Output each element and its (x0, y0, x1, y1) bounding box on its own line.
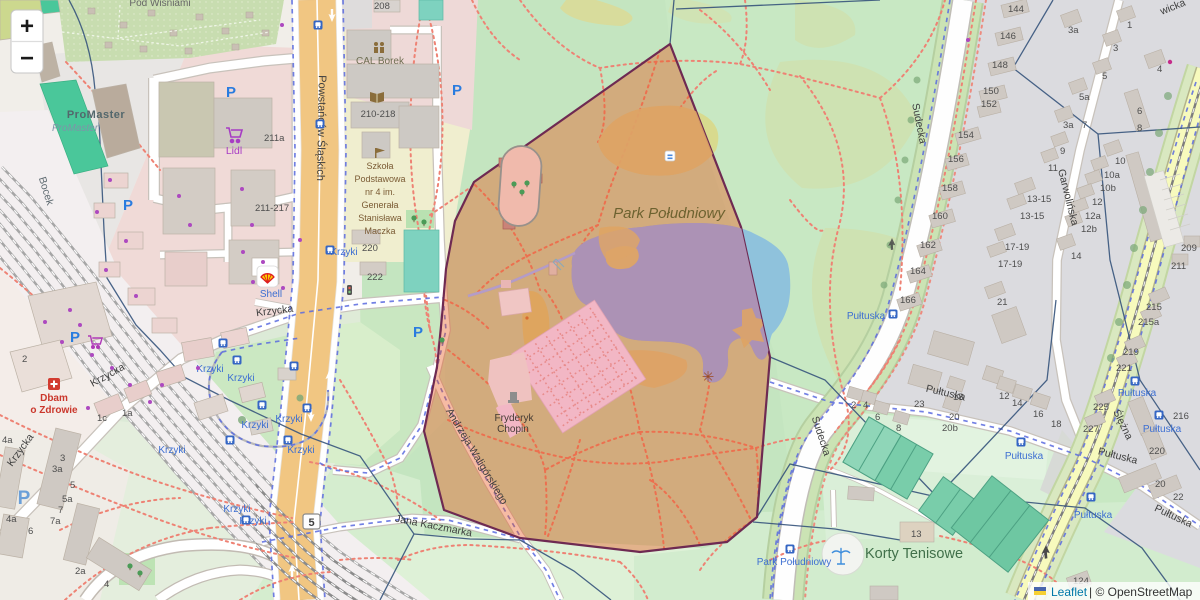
svg-text:Stanisława: Stanisława (358, 213, 402, 223)
svg-text:3: 3 (1113, 43, 1118, 54)
svg-text:Shell: Shell (260, 289, 282, 300)
svg-text:Pod Wiśniami: Pod Wiśniami (129, 0, 190, 9)
svg-text:10a: 10a (1104, 170, 1121, 181)
svg-text:225: 225 (1093, 402, 1109, 413)
svg-text:Pułtuska: Pułtuska (1074, 510, 1113, 521)
svg-text:2a: 2a (75, 566, 86, 577)
svg-text:5a: 5a (62, 494, 73, 505)
svg-text:215a: 215a (1138, 317, 1160, 328)
svg-text:7: 7 (58, 505, 63, 516)
svg-text:10: 10 (1115, 156, 1126, 167)
svg-text:Szkoła: Szkoła (366, 161, 393, 171)
svg-text:Krzyki: Krzyki (241, 420, 268, 431)
svg-text:158: 158 (942, 183, 958, 194)
svg-text:6: 6 (875, 412, 880, 423)
svg-text:162: 162 (920, 240, 936, 251)
svg-text:6: 6 (28, 526, 33, 537)
svg-text:Krzyki: Krzyki (158, 445, 185, 456)
svg-text:Pułtuska: Pułtuska (1005, 451, 1044, 462)
svg-text:208: 208 (374, 1, 390, 12)
svg-text:CAL Borek: CAL Borek (356, 56, 405, 67)
svg-text:3: 3 (60, 453, 65, 464)
svg-text:1c: 1c (97, 413, 107, 424)
svg-text:3a: 3a (52, 464, 63, 475)
svg-text:221: 221 (1116, 363, 1132, 374)
svg-text:14: 14 (1012, 398, 1023, 409)
svg-text:156: 156 (948, 154, 964, 165)
svg-text:222: 222 (367, 272, 383, 283)
svg-text:13-15: 13-15 (1027, 194, 1051, 205)
svg-text:13-15: 13-15 (1020, 211, 1044, 222)
svg-text:3a: 3a (1063, 120, 1074, 131)
svg-text:17-19: 17-19 (1005, 242, 1029, 253)
svg-text:Maczka: Maczka (364, 226, 395, 236)
svg-text:21: 21 (997, 297, 1008, 308)
svg-text:20: 20 (1155, 479, 1166, 490)
svg-text:150: 150 (983, 86, 999, 97)
svg-text:Dbam: Dbam (40, 393, 68, 404)
svg-text:Krzyki: Krzyki (287, 445, 314, 456)
svg-text:4: 4 (104, 579, 109, 590)
svg-text:20b: 20b (942, 423, 958, 434)
svg-text:18: 18 (1051, 419, 1062, 430)
svg-text:215: 215 (1146, 302, 1162, 313)
svg-text:Krzyki: Krzyki (275, 414, 302, 425)
svg-text:211: 211 (1171, 261, 1186, 272)
svg-text:Pułtuska: Pułtuska (847, 311, 886, 322)
svg-text:Leaflet: Leaflet (1051, 585, 1088, 599)
svg-text:12: 12 (999, 391, 1010, 402)
svg-text:23: 23 (914, 399, 925, 410)
svg-text:| © OpenStreetMap: | © OpenStreetMap (1089, 585, 1193, 599)
svg-text:7a: 7a (50, 516, 61, 527)
svg-text:Chopin: Chopin (497, 424, 529, 435)
svg-text:20: 20 (949, 412, 960, 423)
svg-text:5a: 5a (1079, 92, 1090, 103)
svg-text:146: 146 (1000, 31, 1016, 42)
svg-text:Pułtuska: Pułtuska (1118, 388, 1157, 399)
svg-text:P: P (18, 488, 31, 509)
svg-text:160: 160 (932, 211, 948, 222)
svg-text:1: 1 (1127, 20, 1132, 31)
svg-text:12a: 12a (1085, 211, 1102, 222)
svg-text:152: 152 (981, 99, 997, 110)
svg-text:Krzyki: Krzyki (227, 373, 254, 384)
svg-text:4: 4 (863, 400, 868, 411)
svg-text:2: 2 (22, 354, 27, 365)
svg-text:4a: 4a (6, 514, 17, 525)
svg-text:4: 4 (1157, 64, 1162, 75)
svg-text:+: + (20, 13, 34, 40)
svg-text:3a: 3a (1068, 25, 1079, 36)
svg-text:9: 9 (1060, 146, 1065, 157)
svg-text:✳: ✳ (702, 369, 715, 386)
svg-text:22: 22 (1173, 492, 1184, 503)
svg-text:8: 8 (896, 423, 901, 434)
svg-text:Podstawowa: Podstawowa (354, 174, 405, 184)
svg-text:Park Południowy: Park Południowy (757, 557, 831, 568)
svg-text:4a: 4a (2, 435, 13, 446)
svg-text:Lidl: Lidl (226, 145, 242, 157)
svg-text:Krzyki: Krzyki (223, 504, 250, 515)
svg-text:6: 6 (1137, 106, 1142, 117)
svg-text:Korty Tenisowe: Korty Tenisowe (865, 546, 963, 562)
svg-text:nr 4 im.: nr 4 im. (365, 187, 395, 197)
svg-text:209: 209 (1181, 243, 1197, 254)
svg-text:5: 5 (70, 480, 75, 491)
svg-text:8: 8 (1137, 123, 1142, 134)
svg-text:216: 216 (1173, 411, 1189, 422)
svg-text:211-217: 211-217 (255, 203, 289, 214)
svg-text:1a: 1a (122, 408, 133, 419)
svg-text:7: 7 (1082, 120, 1087, 131)
svg-text:Park Południowy: Park Południowy (613, 205, 726, 222)
svg-text:12b: 12b (1081, 224, 1097, 235)
svg-text:16: 16 (1033, 409, 1044, 420)
svg-text:12: 12 (1092, 197, 1103, 208)
svg-text:210-218: 210-218 (361, 109, 396, 120)
svg-text:Krzyki: Krzyki (196, 364, 223, 375)
svg-text:166: 166 (900, 295, 916, 306)
svg-text:−: − (20, 45, 34, 72)
svg-text:Fryderyk: Fryderyk (495, 413, 535, 424)
svg-text:14: 14 (1071, 251, 1082, 262)
svg-text:2: 2 (851, 400, 856, 411)
svg-text:10b: 10b (1100, 183, 1116, 194)
svg-text:148: 148 (992, 60, 1008, 71)
svg-text:220: 220 (1149, 446, 1165, 457)
svg-text:227: 227 (1083, 424, 1099, 435)
svg-text:17-19: 17-19 (998, 259, 1022, 270)
svg-text:5: 5 (308, 517, 314, 529)
svg-text:5: 5 (1102, 71, 1107, 82)
svg-text:ProMaster: ProMaster (67, 109, 126, 121)
svg-text:13: 13 (911, 529, 922, 540)
svg-text:144: 144 (1008, 4, 1024, 15)
svg-text:ProMaster: ProMaster (52, 123, 99, 134)
svg-text:220: 220 (362, 243, 378, 254)
svg-text:Generała: Generała (361, 200, 398, 210)
svg-text:Pułtuska: Pułtuska (1143, 424, 1182, 435)
svg-text:o Zdrowie: o Zdrowie (30, 405, 78, 416)
svg-text:211a: 211a (264, 133, 285, 144)
svg-text:164: 164 (910, 266, 926, 277)
svg-text:154: 154 (958, 130, 974, 141)
svg-text:219: 219 (1123, 347, 1139, 358)
